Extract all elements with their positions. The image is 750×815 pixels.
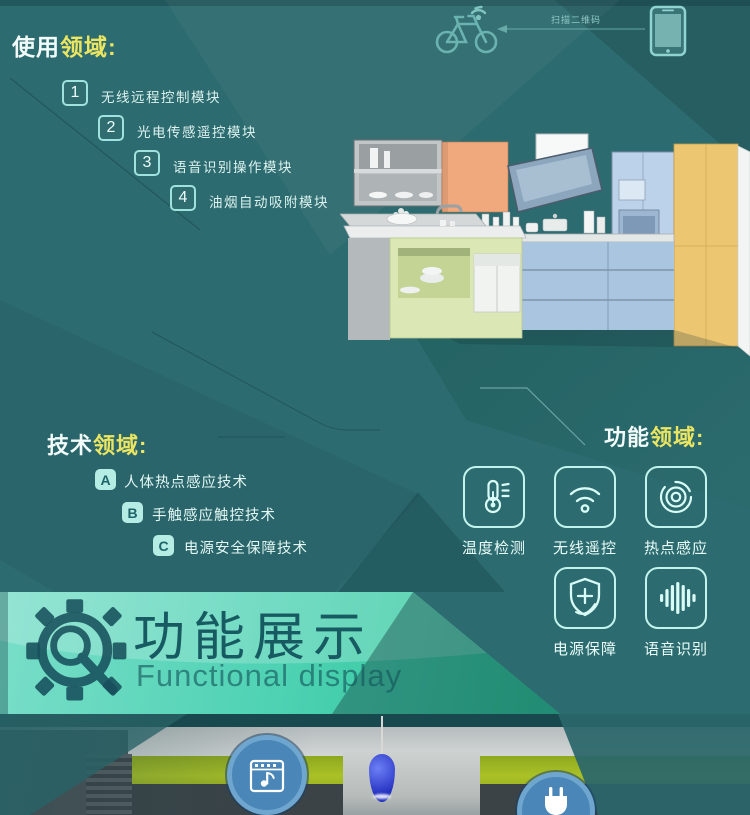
function-tile-power — [554, 567, 616, 629]
usage-section-title: 使用领域: — [12, 28, 117, 62]
hotspot-icon — [656, 477, 696, 517]
kitchen-photo — [0, 714, 750, 815]
function-label-voice: 语音识别 — [633, 638, 719, 659]
smartphone-icon — [649, 5, 687, 57]
bicycle-icon — [432, 2, 504, 56]
tech-item-b-badge: B — [122, 502, 143, 523]
usage-item-2-label: 光电传感遥控模块 — [137, 121, 257, 141]
media-player-badge[interactable] — [227, 735, 307, 815]
banner-left-edge — [0, 592, 8, 714]
functions-title-highlight: 领域: — [650, 425, 704, 450]
function-label-power: 电源保障 — [542, 638, 628, 659]
usage-title-highlight: 领域: — [60, 34, 117, 60]
tech-title-highlight: 领域: — [93, 433, 147, 458]
usage-item-1-label: 无线远程控制模块 — [101, 86, 221, 106]
function-tile-hotspot — [645, 466, 707, 528]
tech-item-c-badge: C — [153, 535, 174, 556]
tech-section-title: 技术领域: — [47, 428, 147, 460]
function-tile-voice — [645, 567, 707, 629]
function-label-temperature: 温度检测 — [451, 537, 537, 558]
tech-item-a-label: 人体热点感应技术 — [124, 471, 248, 492]
arrow-line — [497, 22, 647, 36]
gear-magnifier-icon — [22, 595, 138, 711]
function-label-wireless: 无线遥控 — [542, 537, 628, 558]
tech-item-b-label: 手触感应触控技术 — [152, 504, 276, 525]
usage-item-3-label: 语音识别操作模块 — [173, 156, 293, 176]
wifi-icon — [564, 477, 606, 517]
tech-title-prefix: 技术 — [47, 433, 93, 458]
usage-item-3-number: 3 — [134, 150, 160, 176]
tech-item-c-label: 电源安全保障技术 — [184, 537, 308, 558]
media-player-icon — [245, 753, 289, 797]
usage-item-4-label: 油烟自动吸附模块 — [209, 191, 329, 211]
voice-wave-icon — [656, 578, 696, 618]
usage-item-2-number: 2 — [98, 115, 124, 141]
tech-item-a-badge: A — [95, 469, 116, 490]
shield-plus-icon — [565, 576, 605, 620]
banner-subtitle: Functional display — [136, 658, 402, 694]
thermometer-icon — [474, 477, 514, 517]
functions-title-prefix: 功能 — [604, 425, 650, 450]
usage-item-4-number: 4 — [170, 185, 196, 211]
kitchen-illustration — [340, 118, 750, 363]
functions-section-title: 功能领域: — [604, 420, 704, 452]
function-label-hotspot: 热点感应 — [633, 537, 719, 558]
usage-item-1-number: 1 — [62, 80, 88, 106]
function-tile-wireless — [554, 466, 616, 528]
power-plug-icon — [536, 785, 576, 815]
page: 扫描二维码 使用领域: 1 无线远程控制模块 2 光电传感遥控模块 3 语音识别… — [0, 0, 750, 815]
usage-title-prefix: 使用 — [12, 34, 60, 60]
function-tile-temperature — [463, 466, 525, 528]
